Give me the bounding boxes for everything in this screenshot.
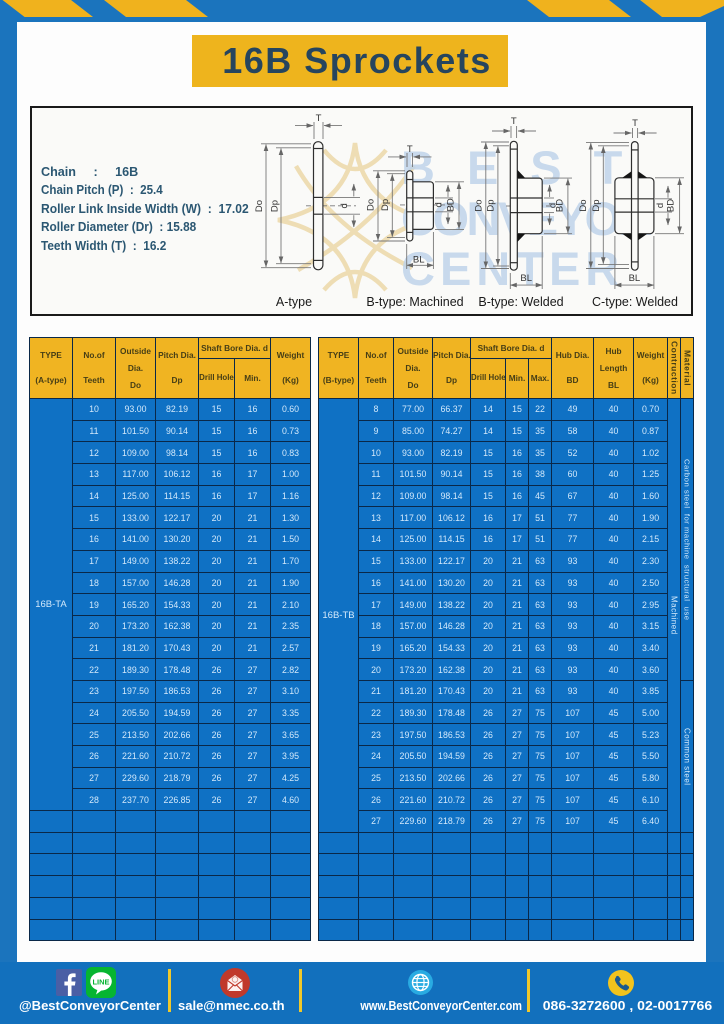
svg-text:Do: Do (366, 199, 377, 211)
svg-text:T: T (511, 116, 517, 127)
svg-text:LINE: LINE (92, 977, 109, 986)
svg-text:BD: BD (555, 199, 566, 212)
svg-text:T: T (632, 118, 638, 129)
svg-text:T: T (407, 144, 413, 155)
svg-text:Dp: Dp (485, 199, 496, 211)
svg-text:Do: Do (578, 199, 589, 211)
svg-text:Dp: Dp (591, 199, 602, 211)
svg-text:d: d (339, 203, 350, 208)
svg-text:Dp: Dp (380, 199, 391, 211)
svg-text:d: d (433, 202, 444, 207)
svg-text:B-type: Welded: B-type: Welded (478, 295, 563, 309)
svg-text:BL: BL (629, 273, 641, 284)
svg-text:C-type: Welded: C-type: Welded (592, 295, 678, 309)
svg-text:A-type: A-type (276, 295, 312, 309)
svg-text:B-type: Machined: B-type: Machined (366, 295, 463, 309)
svg-text:d: d (655, 203, 666, 208)
svg-text:T: T (316, 113, 322, 124)
svg-text:Dp: Dp (270, 200, 281, 212)
svg-text:BD: BD (446, 198, 457, 211)
svg-text:Do: Do (473, 199, 484, 211)
svg-text:BL: BL (520, 273, 532, 284)
svg-text:BL: BL (413, 255, 425, 266)
svg-text:BD: BD (665, 199, 676, 212)
